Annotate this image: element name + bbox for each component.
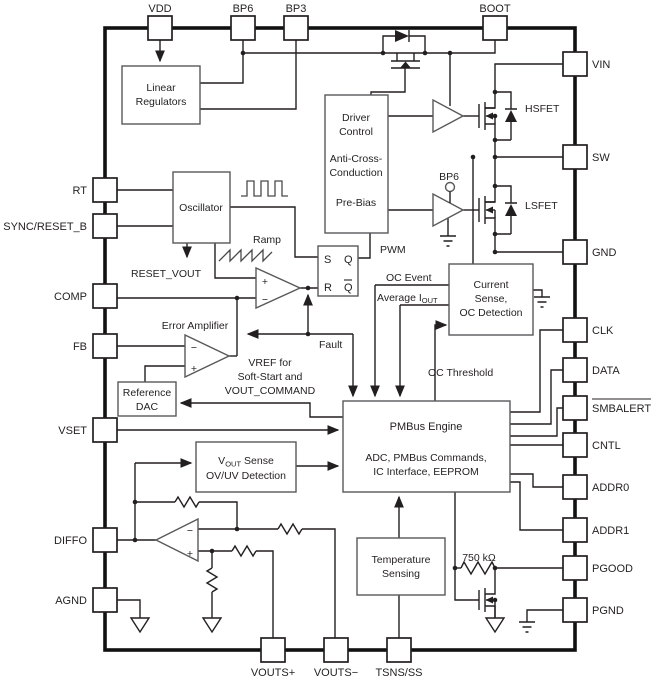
pin-smbalert [563, 396, 587, 420]
pin-agnd [93, 588, 117, 612]
voutsplus-resistor-icon [232, 546, 256, 556]
lsfet-label: LSFET [525, 200, 558, 212]
pin-vset-label: VSET [58, 425, 87, 437]
pmbus-engine-label: PMBus Engine [390, 421, 463, 433]
svg-text:R: R [324, 282, 332, 294]
pin-gnd-label: GND [592, 247, 617, 259]
oscillator-label: Oscillator [179, 202, 223, 214]
svg-text:Pre-Bias: Pre-Bias [336, 197, 376, 209]
block-pwm-latch: S Q R Q [318, 246, 358, 296]
average-iout-label: Average IOUT [377, 292, 438, 305]
pgnd-ground-icon [519, 622, 535, 632]
pin-bp3-label: BP3 [286, 3, 307, 15]
feedback-resistor-icon [175, 497, 199, 507]
pin-boot [483, 16, 507, 40]
pin-bp6 [231, 16, 255, 40]
pin-tsns-ss [387, 638, 411, 662]
pin-addr1 [563, 518, 587, 542]
svg-text:S: S [324, 254, 331, 266]
error-amplifier-icon: − + [185, 335, 229, 377]
driver-control-label: Driver [342, 112, 371, 124]
svg-text:Control: Control [339, 126, 373, 138]
fault-label: Fault [319, 339, 342, 351]
svg-text:Conduction: Conduction [329, 167, 382, 179]
pin-vdd [148, 16, 172, 40]
ramp-label: Ramp [253, 234, 281, 246]
hsfet-icon [479, 92, 517, 140]
pin-sw-label: SW [592, 152, 610, 164]
svg-text:OV/UV Detection: OV/UV Detection [206, 470, 286, 482]
diff-amplifier-icon: − + [156, 519, 198, 561]
pwm-comparator-icon: + − [256, 268, 300, 308]
pins-left: RT SYNC/RESET_B COMP FB VSET DIFFO AGND [3, 178, 117, 612]
pin-pgood-label: PGOOD [592, 563, 633, 575]
reference-dac-label: Reference [123, 387, 172, 399]
pins-top: VDD BP6 BP3 BOOT [148, 3, 511, 40]
pin-diffo-label: DIFFO [54, 535, 87, 547]
hs-gate-driver-icon [433, 100, 463, 132]
svg-text:OC Detection: OC Detection [459, 307, 522, 319]
pin-rt [93, 178, 117, 202]
pin-agnd-label: AGND [55, 595, 87, 607]
pin-smbalert-label: SMBALERT [592, 403, 651, 415]
comparator-plus: + [262, 276, 268, 288]
block-oscillator: Oscillator [173, 172, 230, 243]
svg-text:Q: Q [344, 254, 353, 266]
pin-bp3 [284, 16, 308, 40]
pin-vin [563, 52, 587, 76]
block-diagram: + − − + − + Linear Regulators Oscillator… [0, 0, 657, 680]
pin-voutsplus [261, 638, 285, 662]
voutsminus-resistor-icon [278, 524, 302, 534]
ramp-waveform-icon [219, 250, 272, 261]
pin-vdd-label: VDD [148, 3, 171, 15]
svg-text:IC Interface, EEPROM: IC Interface, EEPROM [373, 466, 479, 478]
error-amp-plus: + [191, 363, 197, 375]
block-driver-control: Driver Control Anti-Cross- Conduction Pr… [325, 95, 388, 233]
vref-label: VREF for [248, 357, 292, 369]
pin-diffo [93, 528, 117, 552]
pin-rt-label: RT [73, 185, 88, 197]
error-amplifier-label: Error Amplifier [162, 320, 229, 332]
clock-waveform-icon [241, 181, 288, 196]
pin-voutsminus [324, 638, 348, 662]
pin-addr0 [563, 475, 587, 499]
block-pmbus-engine: PMBus Engine ADC, PMBus Commands, IC Int… [343, 401, 510, 492]
hsfet-label: HSFET [525, 103, 560, 115]
pin-data-label: DATA [592, 365, 620, 377]
pin-fb-label: FB [73, 341, 87, 353]
pin-pgood [563, 556, 587, 580]
pin-vin-label: VIN [592, 59, 610, 71]
pin-clk-label: CLK [592, 325, 614, 337]
svg-text:DAC: DAC [136, 401, 159, 413]
pin-comp-label: COMP [54, 291, 87, 303]
svg-text:Sense,: Sense, [475, 293, 508, 305]
temperature-sensing-label: Temperature [372, 554, 431, 566]
divider-resistor-icon [207, 568, 217, 592]
svg-text:Q: Q [344, 282, 353, 294]
pin-cntl-label: CNTL [592, 440, 621, 452]
lsfet-icon [479, 186, 517, 234]
pullup-resistor-label: 750 kΩ [462, 552, 496, 564]
block-current-sense: Current Sense, OC Detection [449, 264, 533, 335]
agnd-triangle-ground-icon [131, 618, 149, 632]
pin-sync-reset-b-label: SYNC/RESET_B [3, 221, 87, 233]
svg-text:ADC, PMBus Commands,: ADC, PMBus Commands, [365, 452, 486, 464]
diff-amp-plus: + [187, 548, 193, 560]
boot-switch-mosfet-icon [391, 53, 420, 68]
block-temperature-sensing: Temperature Sensing [357, 538, 445, 595]
comparator-minus: − [262, 294, 268, 306]
pin-comp [93, 284, 117, 308]
pin-tsns-ss-label: TSNS/SS [375, 667, 422, 679]
current-sense-ground-icon [534, 297, 550, 307]
bp6-supply-terminal-icon [446, 183, 455, 204]
pgood-mosfet-icon [479, 588, 493, 612]
svg-text:Soft-Start and: Soft-Start and [238, 371, 303, 383]
bp6-supply-label: BP6 [439, 171, 459, 183]
block-vout-sense: VOUTSense OV/UV Detection [196, 442, 296, 492]
pin-vset [93, 418, 117, 442]
pin-cntl [563, 433, 587, 457]
current-sense-label: Current [473, 279, 508, 291]
boot-diode-icon [395, 30, 409, 42]
pin-pgnd-label: PGND [592, 605, 624, 617]
pin-boot-label: BOOT [479, 3, 510, 15]
reset-vout-label: RESET_VOUT [131, 268, 202, 280]
pgood-triangle-ground-icon [486, 618, 504, 632]
pin-sync-reset-b [93, 214, 117, 238]
pin-gnd [563, 240, 587, 264]
pin-clk [563, 318, 587, 342]
svg-text:VOUT_COMMAND: VOUT_COMMAND [225, 385, 316, 397]
pin-pgnd [563, 598, 587, 622]
pin-sw [563, 145, 587, 169]
linear-regulators-label: Linear [146, 82, 176, 94]
pin-voutsplus-label: VOUTS+ [251, 667, 295, 679]
svg-text:Sensing: Sensing [382, 568, 420, 580]
pin-data [563, 358, 587, 382]
block-linear-regulators: Linear Regulators [122, 66, 200, 124]
block-reference-dac: Reference DAC [118, 382, 176, 416]
pin-voutsminus-label: VOUTS− [314, 667, 358, 679]
error-amp-minus: − [191, 342, 197, 354]
oc-threshold-label: OC Threshold [428, 367, 493, 379]
svg-text:Regulators: Regulators [136, 96, 187, 108]
ls-driver-ground-icon [440, 218, 456, 246]
pin-fb [93, 334, 117, 358]
pwm-label: PWM [380, 244, 406, 256]
pin-addr1-label: ADDR1 [592, 525, 629, 537]
oc-event-label: OC Event [386, 272, 432, 284]
pin-addr0-label: ADDR0 [592, 482, 629, 494]
diff-amp-minus: − [187, 525, 193, 537]
svg-text:Anti-Cross-: Anti-Cross- [330, 153, 383, 165]
pins-bottom: VOUTS+ VOUTS− TSNS/SS [251, 638, 423, 679]
divider-triangle-ground-icon [203, 618, 221, 632]
pin-bp6-label: BP6 [233, 3, 254, 15]
